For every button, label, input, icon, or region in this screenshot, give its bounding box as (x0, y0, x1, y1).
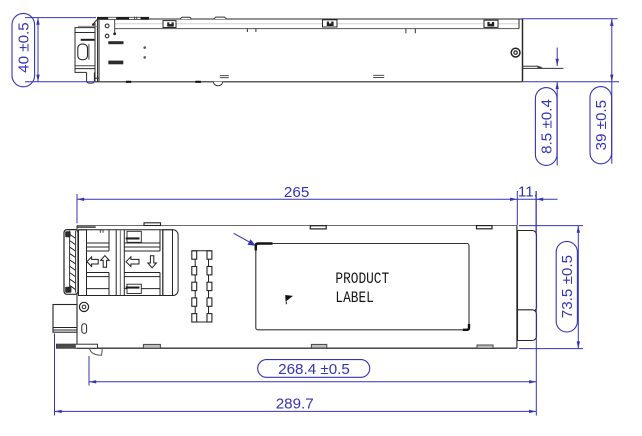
svg-text:LABEL: LABEL (335, 290, 373, 308)
svg-text:11.: 11. (518, 183, 538, 200)
svg-text:39 ±0.5: 39 ±0.5 (593, 100, 610, 151)
svg-text:73.5 ±0.5: 73.5 ±0.5 (559, 255, 576, 318)
svg-text:PRODUCT: PRODUCT (335, 271, 389, 289)
svg-text:40 ±0.5: 40 ±0.5 (16, 22, 33, 73)
svg-text:265: 265 (284, 184, 309, 201)
svg-text:8.5 ±0.4: 8.5 ±0.4 (538, 99, 555, 154)
svg-text:289.7: 289.7 (276, 396, 314, 413)
svg-text:268.4 ±0.5: 268.4 ±0.5 (278, 361, 350, 378)
